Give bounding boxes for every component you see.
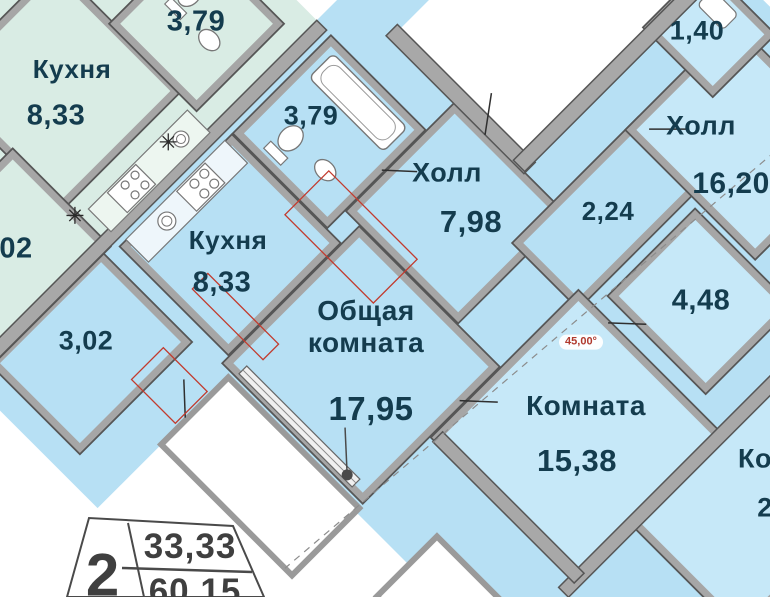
floor-plan: 3,79 Кухня 8,33 02 3,79 Холл 16,20 1,40 … [0,0,770,597]
area-stamp [67,518,264,597]
plan-rotated-group [0,0,770,597]
floor-plan-canvas [0,0,770,597]
